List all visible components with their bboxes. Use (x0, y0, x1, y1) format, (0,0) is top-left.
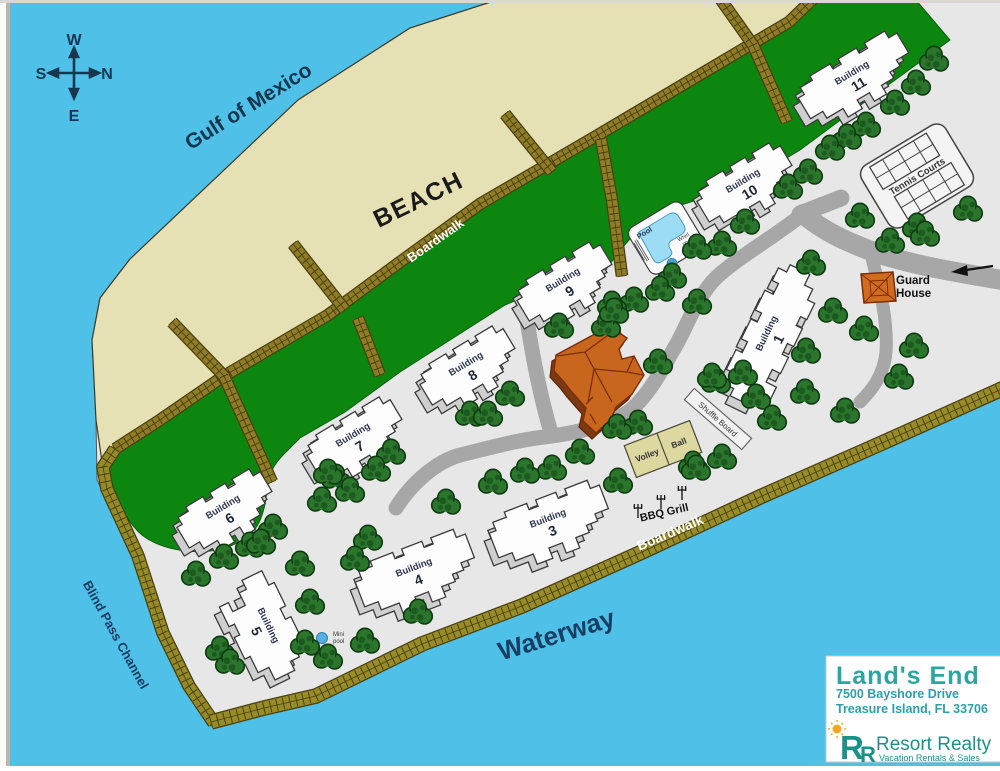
svg-text:R: R (860, 742, 876, 766)
svg-text:Guard: Guard (896, 275, 930, 287)
svg-text:Treasure Island, FL 33706: Treasure Island, FL 33706 (836, 702, 988, 716)
svg-text:Resort Realty: Resort Realty (876, 734, 992, 755)
svg-text:Vacation Rentals & Sales: Vacation Rentals & Sales (879, 753, 980, 763)
svg-text:W: W (66, 32, 82, 49)
svg-text:E: E (69, 108, 80, 125)
svg-text:House: House (896, 288, 931, 300)
svg-text:7500 Bayshore Drive: 7500 Bayshore Drive (836, 687, 959, 701)
svg-text:N: N (101, 66, 113, 83)
svg-text:pool: pool (333, 639, 344, 645)
svg-text:Mini: Mini (333, 632, 344, 638)
svg-text:S: S (36, 66, 47, 83)
svg-text:Land's End: Land's End (836, 662, 980, 690)
